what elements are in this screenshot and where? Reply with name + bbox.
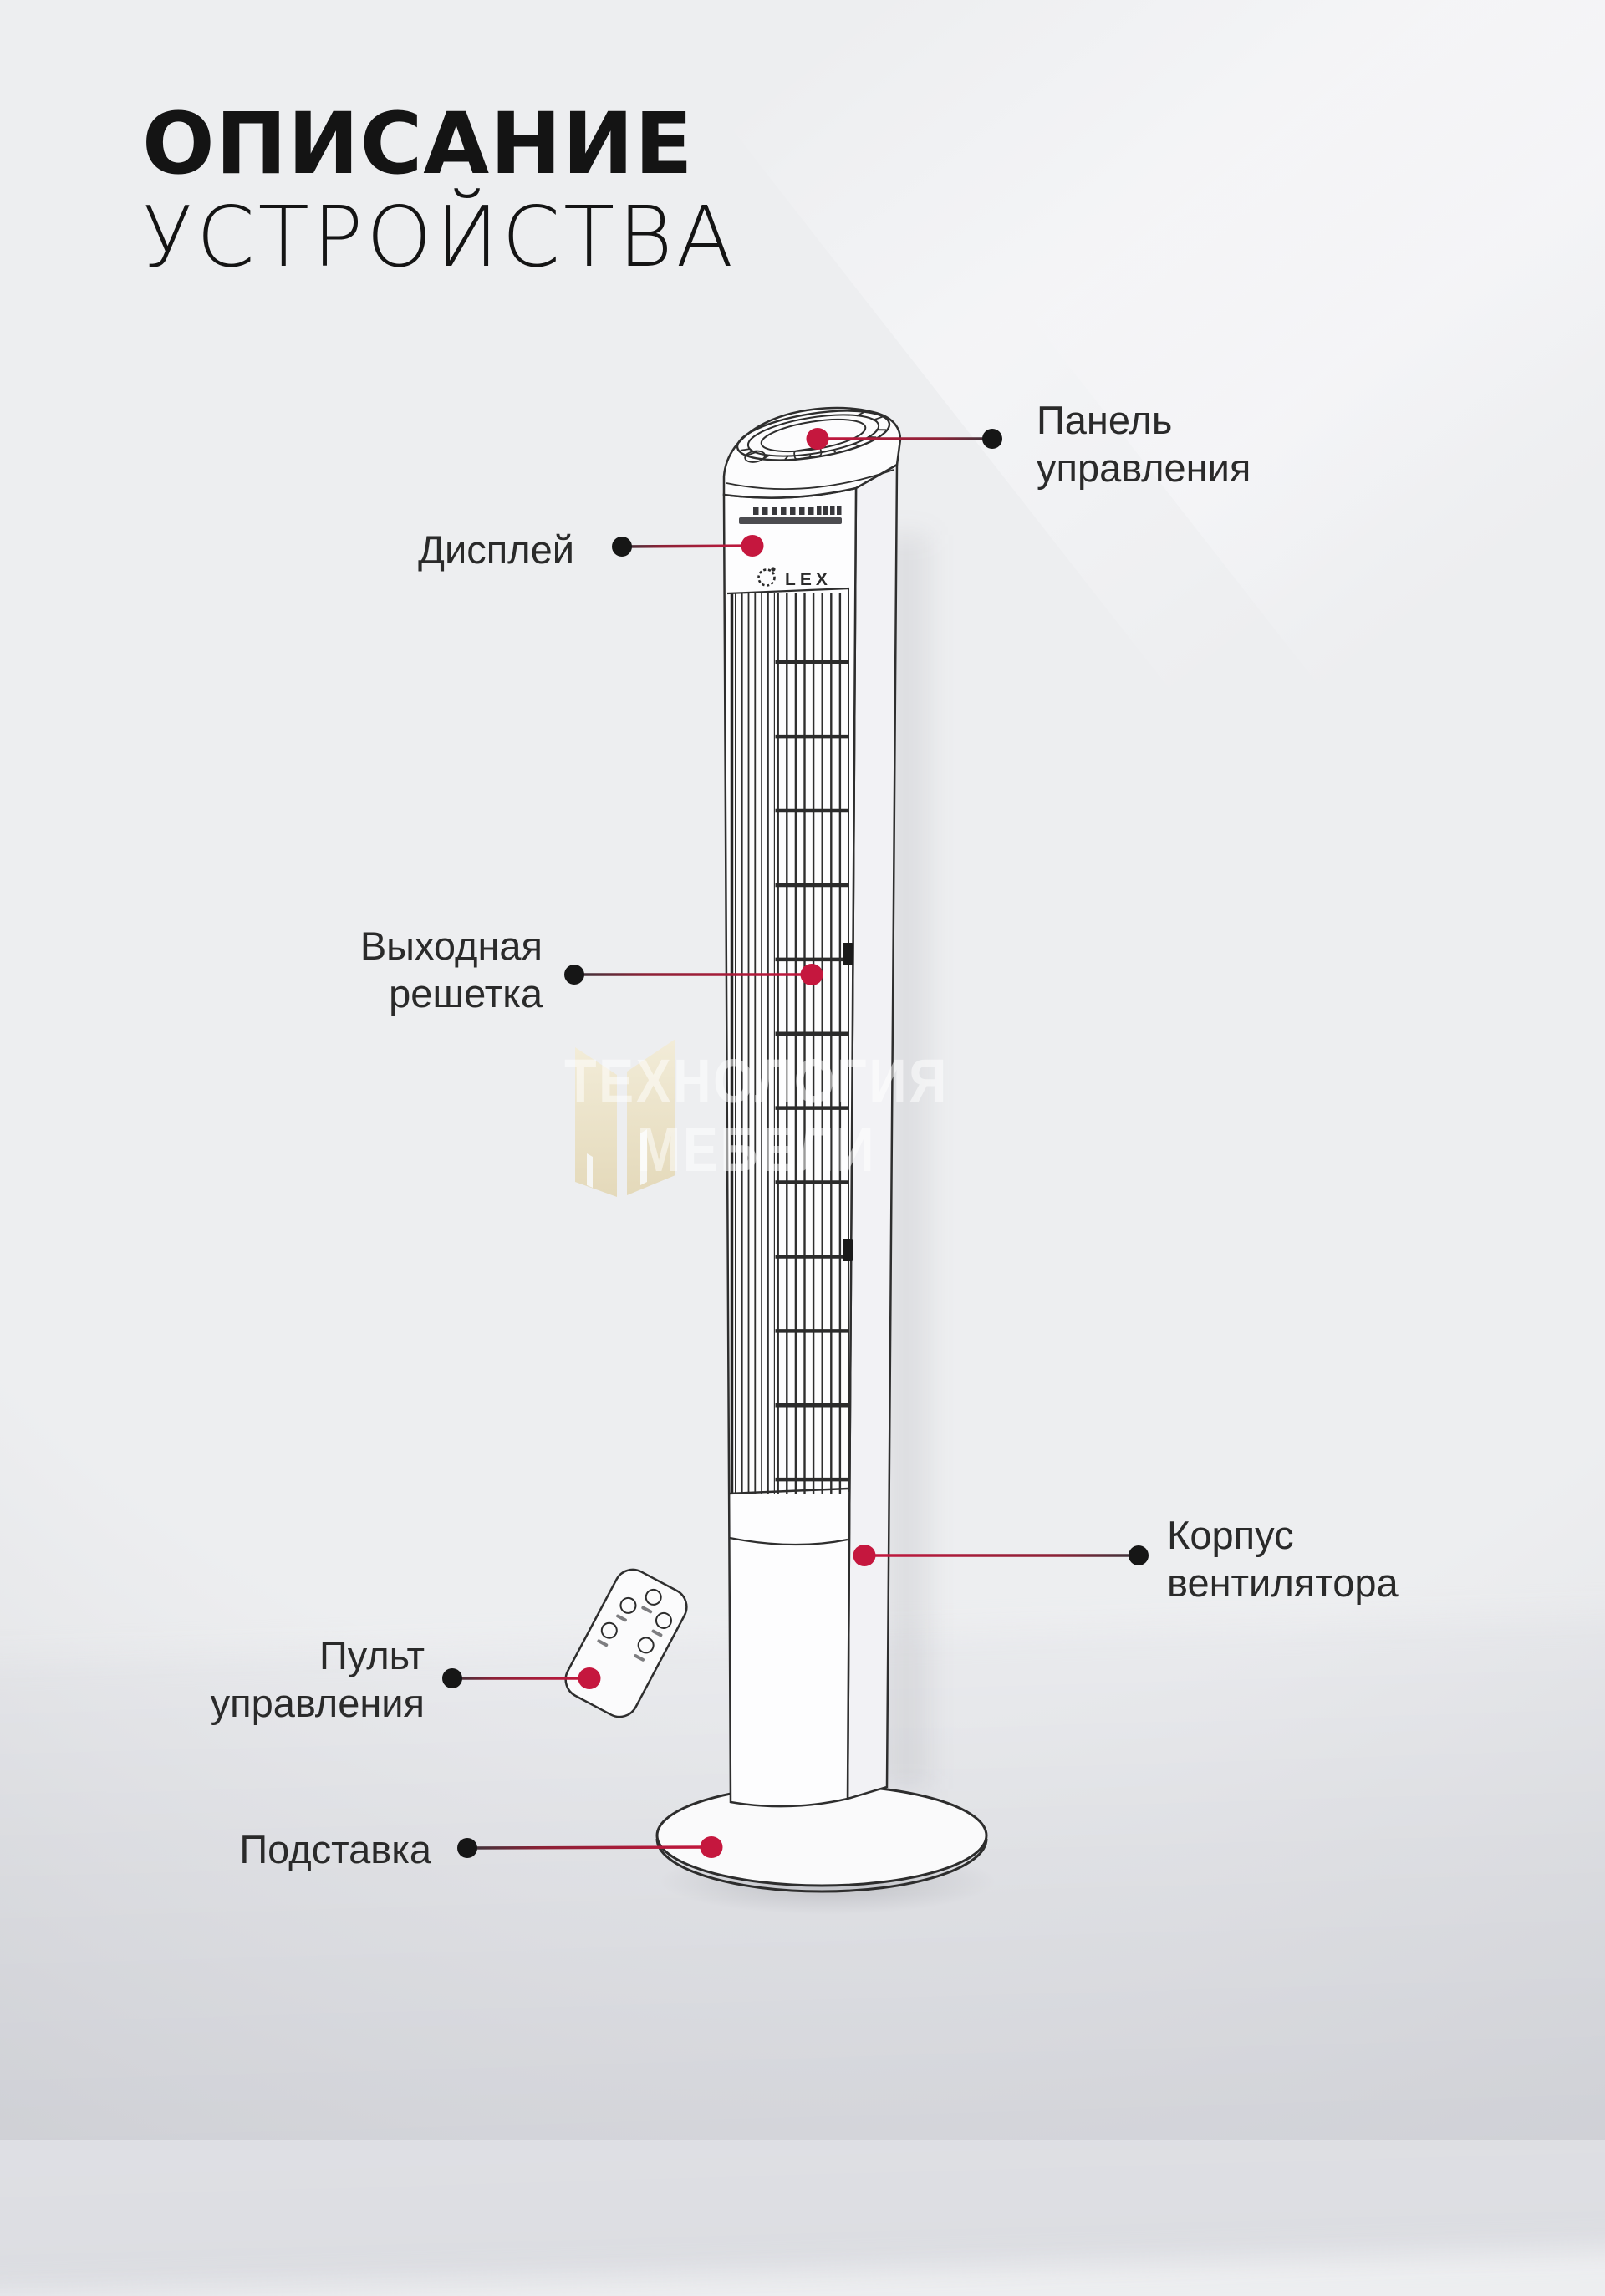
- fan-illustration: LEX: [0, 0, 1605, 2140]
- red-dot-fan-body: [853, 1545, 876, 1566]
- black-dot-control-panel: [982, 429, 1002, 449]
- callout-label-display: Дисплей: [418, 526, 574, 573]
- fan-tower: LEX: [724, 402, 900, 1806]
- red-dot-outlet-grille: [801, 964, 823, 985]
- black-dot-remote: [442, 1668, 462, 1688]
- callout-label-control-panel: Панель управления: [1037, 396, 1251, 491]
- red-dot-remote: [578, 1667, 601, 1689]
- brand-logo-text: LEX: [785, 570, 832, 589]
- red-dot-stand: [701, 1836, 723, 1858]
- watermark-logo-icon: [575, 1039, 675, 1197]
- grille-handle-upper: [843, 943, 853, 965]
- page-title-line1: ОПИСАНИЕ: [142, 99, 736, 191]
- black-dot-fan-body: [1129, 1545, 1149, 1565]
- black-dot-outlet-grille: [564, 965, 584, 985]
- remote-control: [559, 1563, 693, 1723]
- leader-stand: [467, 1847, 711, 1848]
- page-title: ОПИСАНИЕ УСТРОЙСТВА: [142, 99, 736, 284]
- grille-handle-lower: [843, 1239, 853, 1261]
- callout-label-fan-body: Корпус вентилятора: [1167, 1511, 1399, 1606]
- red-dot-display: [741, 535, 764, 557]
- red-dot-control-panel: [807, 428, 829, 450]
- remote-body: [559, 1563, 693, 1723]
- tower-front-face: [724, 488, 856, 1806]
- black-dot-display: [612, 537, 632, 557]
- black-dot-stand: [457, 1838, 477, 1858]
- callout-label-outlet-grille: Выходная решетка: [360, 922, 543, 1017]
- leader-display: [622, 546, 752, 547]
- page: { "title": {"line1": "ОПИСАНИЕ", "line2"…: [0, 0, 1605, 2140]
- callout-label-stand: Подставка: [239, 1825, 431, 1873]
- display-area: [739, 506, 842, 524]
- brand-logo-icon-dot: [771, 567, 775, 571]
- page-title-line2: УСТРОЙСТВА: [142, 191, 736, 284]
- display-bar: [739, 517, 842, 524]
- callout-label-remote: Пульт управления: [211, 1632, 425, 1727]
